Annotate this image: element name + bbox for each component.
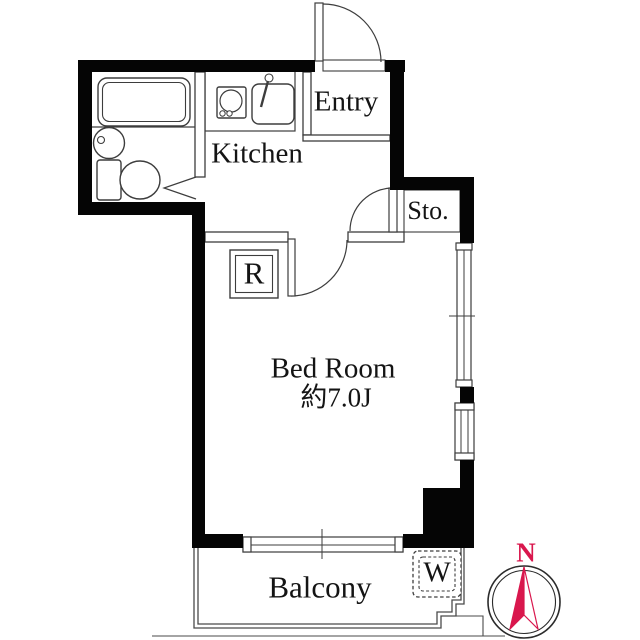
storage-door-arc bbox=[350, 188, 393, 231]
storage-label: Sto. bbox=[407, 198, 448, 224]
entry-step-edge bbox=[303, 135, 390, 141]
wall-bathroom-east bbox=[195, 72, 205, 177]
window-east-upper-cap bbox=[456, 380, 472, 387]
kitchen-label: Kitchen bbox=[211, 140, 303, 169]
kitchen-unit bbox=[205, 70, 295, 131]
kitchen-faucet-icon bbox=[265, 74, 273, 82]
storage-door-leaf bbox=[389, 188, 397, 232]
stove-burner-icon bbox=[220, 90, 242, 112]
washbasin-icon bbox=[94, 128, 125, 159]
wall-bedroom-partition-west bbox=[205, 232, 288, 242]
kitchen-sink-icon bbox=[252, 84, 294, 124]
entry-door-arc bbox=[323, 4, 381, 62]
wall-bathroom-south bbox=[78, 202, 205, 215]
window-east-lower-cap bbox=[455, 403, 474, 410]
floor-plan: Kitchen Entry Sto. R Bed Room 約7.0J Balc… bbox=[0, 0, 640, 640]
bedroom-label: Bed Room bbox=[271, 355, 396, 384]
wall-south-east-segment bbox=[403, 534, 423, 548]
bedroom-door-leaf bbox=[288, 239, 295, 296]
stove-knob-icon bbox=[227, 111, 232, 116]
wall-east-upper bbox=[460, 177, 474, 243]
wall-west-bathroom bbox=[78, 60, 92, 215]
washbasin-faucet-icon bbox=[98, 137, 105, 144]
wall-bedroom-partition-east bbox=[348, 232, 404, 242]
wall-west-bedroom bbox=[192, 202, 205, 548]
window-east-lower bbox=[455, 403, 474, 460]
toilet-bowl-icon bbox=[120, 161, 160, 199]
balcony-step-line bbox=[456, 616, 483, 636]
wall-southeast-step bbox=[423, 488, 474, 548]
wall-kitchen-entry bbox=[303, 72, 311, 135]
bedroom-size-label: 約7.0J bbox=[300, 385, 371, 412]
balcony-label: Balcony bbox=[268, 572, 371, 603]
compass-north-label: N bbox=[516, 540, 536, 567]
wall-east-lower bbox=[460, 460, 474, 488]
refrigerator-label: R bbox=[244, 258, 265, 289]
compass-needle-icon bbox=[510, 567, 524, 629]
wall-entry-east bbox=[390, 60, 404, 190]
compass-needle-outline-icon bbox=[524, 567, 538, 629]
stove-knob-icon bbox=[220, 111, 225, 116]
toilet-tank-icon bbox=[97, 160, 121, 200]
exterior-walls bbox=[78, 60, 474, 548]
window-east-lower-cap bbox=[455, 453, 474, 460]
wall-south-west-segment bbox=[192, 534, 243, 548]
window-south-cap bbox=[243, 537, 251, 552]
entry-label: Entry bbox=[314, 88, 378, 117]
bathtub-inner-icon bbox=[103, 83, 186, 122]
window-south-cap bbox=[395, 537, 403, 552]
bathroom-door-swing-icon bbox=[164, 177, 196, 199]
wall-east-mid bbox=[460, 387, 474, 403]
bathroom-unit bbox=[92, 78, 196, 200]
window-east-upper-cap bbox=[456, 243, 472, 250]
entry-door-leaf bbox=[315, 3, 323, 61]
wall-north bbox=[78, 60, 315, 72]
entry-door-threshold bbox=[323, 60, 385, 71]
compass-rose bbox=[488, 566, 560, 638]
doors bbox=[288, 3, 397, 296]
washing-machine-label: W bbox=[423, 559, 450, 588]
bedroom-door-arc bbox=[291, 240, 347, 296]
